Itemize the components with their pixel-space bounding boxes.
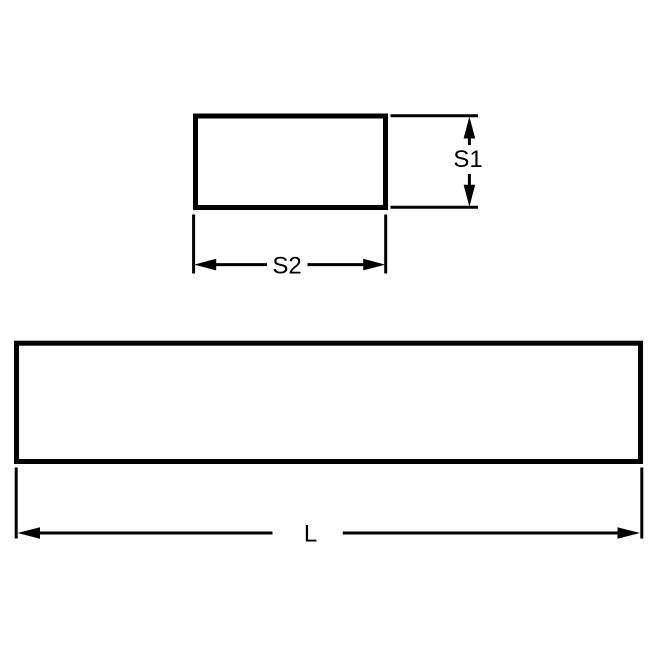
svg-text:L: L <box>304 521 317 548</box>
svg-text:S2: S2 <box>272 252 301 279</box>
svg-text:S1: S1 <box>453 146 482 173</box>
